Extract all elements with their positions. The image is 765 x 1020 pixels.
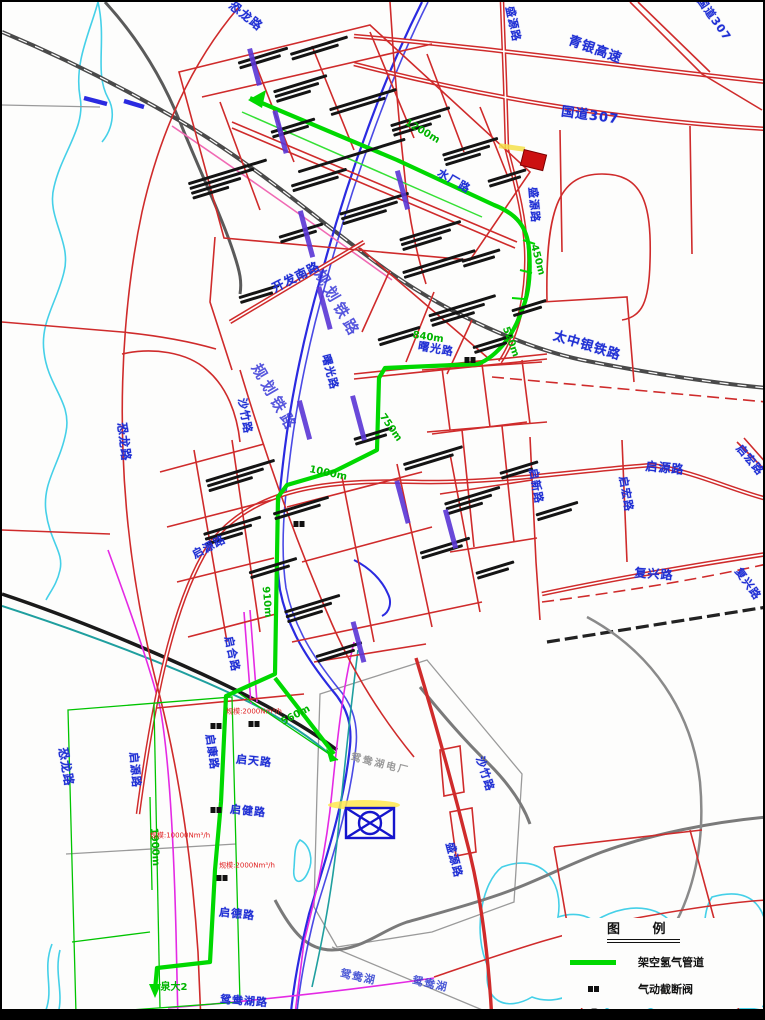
legend-item-valve: 气动截断阀: [570, 981, 762, 997]
legend-pipeline-label: 架空氢气管道: [638, 954, 704, 970]
legend-item-pipeline: 架空氢气管道: [570, 954, 762, 970]
legend-title: 图 例: [607, 918, 680, 943]
pipeline-line-swatch: [570, 960, 616, 965]
map-linework: [2, 2, 765, 1020]
valve-icon: [570, 986, 616, 992]
boundary-magenta-lines: [108, 126, 434, 1020]
planned-railway-corridor: [84, 2, 428, 1020]
map-legend: 图 例 架空氢气管道 气动截断阀: [562, 918, 762, 1008]
powerplant-emblem: [346, 808, 394, 838]
bottom-frame-bar: [2, 1009, 765, 1020]
corridor-teal-line: [312, 650, 358, 987]
legend-valve-label: 气动截断阀: [638, 981, 693, 997]
planning-map-canvas: 恐龙路国道307青银高速国道307盛源路盛源路水厂路太中银铁路恐龙路恐龙路开发南…: [0, 0, 765, 1020]
